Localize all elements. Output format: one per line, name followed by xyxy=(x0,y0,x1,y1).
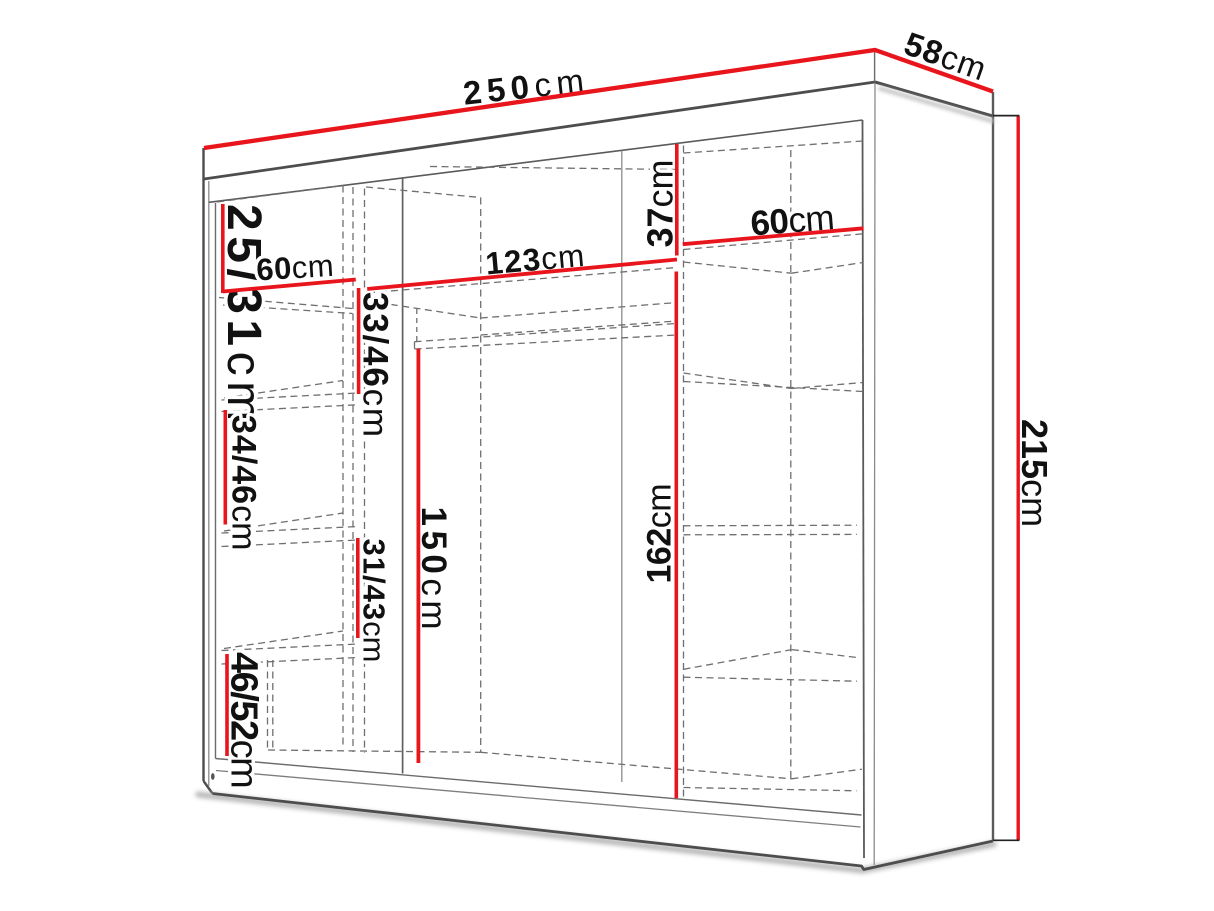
svg-text:33/46cm: 33/46cm xyxy=(356,292,395,439)
svg-text:37cm: 37cm xyxy=(640,159,681,247)
svg-text:215cm: 215cm xyxy=(1014,419,1055,527)
svg-text:31/43cm: 31/43cm xyxy=(357,539,392,663)
svg-text:25/31cm: 25/31cm xyxy=(217,204,270,427)
svg-text:162cm: 162cm xyxy=(641,484,679,584)
svg-text:34/46cm: 34/46cm xyxy=(225,415,263,550)
